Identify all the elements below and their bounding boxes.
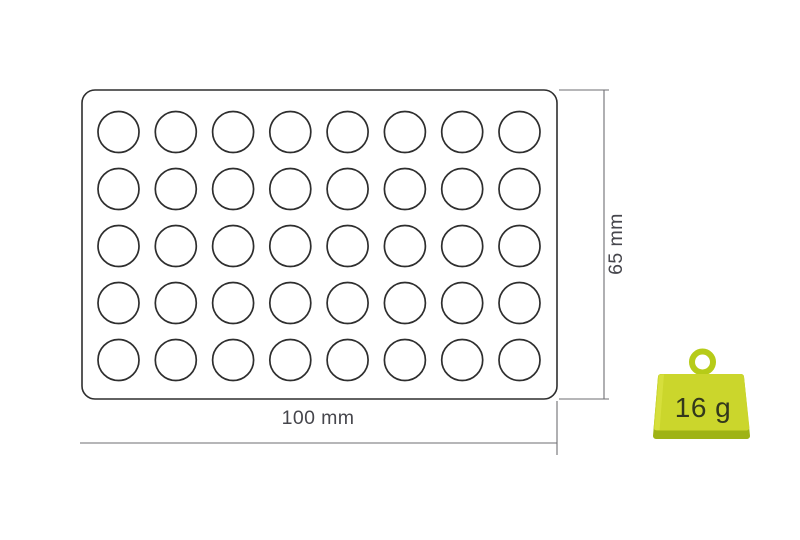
cavity-circle bbox=[270, 283, 311, 324]
weight-ring-icon bbox=[692, 352, 713, 373]
cavity-circle bbox=[384, 169, 425, 210]
width-dimension: 100 mm bbox=[80, 401, 557, 455]
cavity-circle bbox=[155, 226, 196, 267]
cavity-circle bbox=[270, 169, 311, 210]
cavity-circle bbox=[98, 112, 139, 153]
cavity-circle bbox=[384, 283, 425, 324]
cavity-circle bbox=[327, 226, 368, 267]
weight-label: 16 g bbox=[675, 392, 732, 423]
cavity-circle bbox=[499, 169, 540, 210]
cavity-circle bbox=[155, 112, 196, 153]
cavity-circle bbox=[327, 112, 368, 153]
cavity-circle bbox=[442, 283, 483, 324]
cavity-circle bbox=[270, 112, 311, 153]
tray-outline bbox=[82, 90, 557, 399]
cavity-circle bbox=[155, 283, 196, 324]
cavity-circle bbox=[98, 340, 139, 381]
cavity-circle bbox=[327, 283, 368, 324]
cavity-circle bbox=[155, 340, 196, 381]
cavity-circle bbox=[213, 283, 254, 324]
cavity-circle bbox=[499, 112, 540, 153]
width-dim-label: 100 mm bbox=[282, 407, 355, 429]
cavity-circle bbox=[442, 169, 483, 210]
cavity-circle bbox=[499, 283, 540, 324]
height-dim-label: 65 mm bbox=[605, 213, 627, 275]
cavity-circle bbox=[384, 340, 425, 381]
cavity-circle bbox=[499, 340, 540, 381]
cavity-circle bbox=[213, 169, 254, 210]
cavity-circle bbox=[327, 340, 368, 381]
cavity-circle bbox=[213, 340, 254, 381]
cavity-circle bbox=[270, 340, 311, 381]
cavity-circle bbox=[384, 226, 425, 267]
tray-dimension-diagram: 65 mm 100 mm 16 g bbox=[0, 0, 800, 540]
cavity-circle bbox=[499, 226, 540, 267]
cavity-circle bbox=[442, 112, 483, 153]
diagram-canvas: 65 mm 100 mm 16 g bbox=[0, 0, 800, 540]
cavity-circle bbox=[98, 226, 139, 267]
cavity-circle bbox=[213, 226, 254, 267]
cavity-circle bbox=[98, 169, 139, 210]
cavity-circle bbox=[327, 169, 368, 210]
cavity-circle bbox=[213, 112, 254, 153]
cavity-circle bbox=[270, 226, 311, 267]
height-dimension: 65 mm bbox=[559, 90, 627, 399]
cavity-circle bbox=[442, 340, 483, 381]
cavity-circle bbox=[384, 112, 425, 153]
weight-badge: 16 g bbox=[654, 352, 747, 437]
cavity-circle bbox=[98, 283, 139, 324]
cavity-circle bbox=[442, 226, 483, 267]
cavity-circle bbox=[155, 169, 196, 210]
